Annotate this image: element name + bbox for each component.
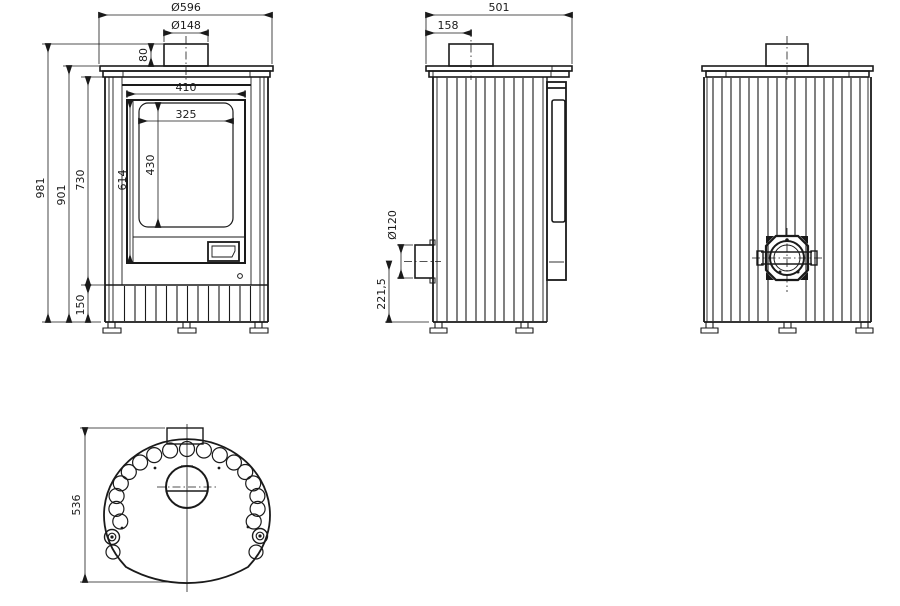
top-view: 536	[70, 424, 270, 592]
dim-flue-diameter: Ø148	[171, 19, 201, 32]
side-feet	[430, 322, 533, 333]
front-feet	[103, 322, 268, 333]
dim-door-height: 614	[116, 170, 129, 191]
dim-depth: 501	[489, 1, 510, 14]
side-view: 501 158 Ø120 221,5	[375, 1, 572, 333]
dim-flue-center-from-back: 158	[438, 19, 459, 32]
dim-flue-collar-height: 80	[137, 48, 150, 62]
dim-air-inlet-diameter: Ø120	[386, 210, 399, 240]
dim-total-height: 981	[34, 178, 47, 199]
dim-glass-height: 430	[144, 155, 157, 176]
side-body	[433, 77, 547, 322]
dim-air-inlet-center-height: 221,5	[375, 278, 388, 310]
front-plinth	[105, 285, 268, 322]
front-view: Ø596 Ø148 80 410 325 430 614 730 150 901…	[34, 1, 273, 333]
top-plate-side	[426, 66, 572, 77]
rear-view	[701, 36, 873, 333]
door-handle-side	[552, 100, 565, 222]
stove-drawing: Ø596 Ø148 80 410 325 430 614 730 150 901…	[0, 0, 900, 606]
dim-body-width: 536	[70, 495, 83, 516]
door-profile	[547, 82, 566, 280]
rear-feet	[701, 322, 873, 333]
door-handle	[208, 242, 239, 261]
dim-height-to-top-plate: 901	[55, 185, 68, 206]
door-knob	[238, 274, 243, 279]
dim-top-plate-diameter: Ø596	[171, 1, 201, 14]
dim-door-width: 410	[176, 81, 197, 94]
top-plate-rear	[702, 66, 873, 77]
technical-drawing-canvas: Ø596 Ø148 80 410 325 430 614 730 150 901…	[0, 0, 900, 606]
dim-glass-width: 325	[176, 108, 197, 121]
dim-plinth-height: 150	[74, 295, 87, 316]
top-dimensions: 536	[70, 428, 173, 582]
air-inlet-pipe	[404, 240, 441, 283]
rear-body	[704, 77, 871, 322]
top-plate	[100, 66, 273, 77]
side-dimensions: 501 158 Ø120 221,5	[375, 1, 572, 322]
stove-door	[127, 100, 245, 278]
air-damper-assembly	[752, 228, 822, 292]
fixing-bolts	[105, 467, 268, 545]
dim-body-height: 730	[74, 170, 87, 191]
front-dimensions: Ø596 Ø148 80 410 325 430 614 730 150 901…	[34, 1, 272, 322]
